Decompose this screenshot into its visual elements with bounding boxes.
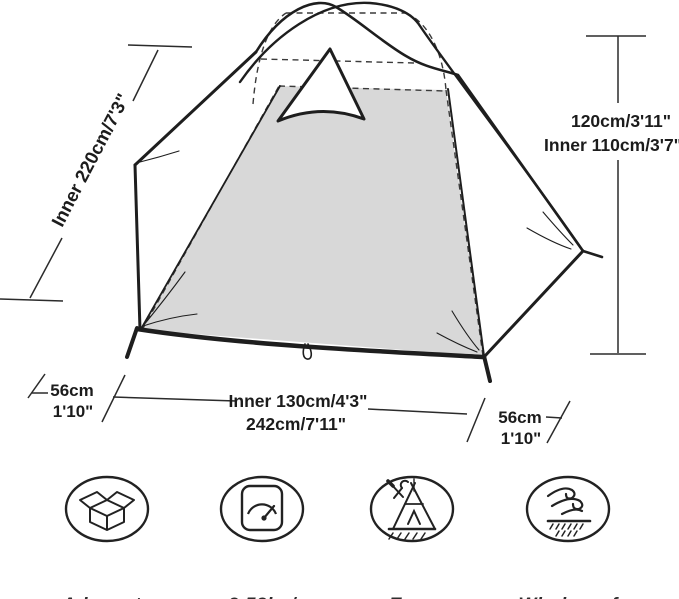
feature-label-line1: Easy	[383, 595, 442, 599]
feature-easy-setup: Easy set up	[336, 472, 488, 599]
tent-stake-left	[127, 328, 137, 357]
feature-label-line1: Adequate	[62, 595, 153, 599]
dim-label-left-vestibule-cm: 56cm	[50, 381, 93, 400]
tent-setup-icon	[362, 472, 462, 548]
dim-label-height: 120cm/3'11"	[571, 111, 671, 131]
open-box-icon	[57, 472, 157, 548]
feature-label-line1: Windproof	[518, 595, 617, 599]
product-diagram: Inner 220cm/7'3" 120cm/3'11" Inner 110cm…	[0, 0, 679, 599]
tent-illustration: Inner 220cm/7'3" 120cm/3'11" Inner 110cm…	[0, 0, 679, 462]
tent-stake-guy	[583, 251, 602, 257]
dim-label-inner-length: Inner 220cm/7'3"	[47, 90, 133, 230]
feature-weight: 2.58kg/ 5.68lbs	[186, 472, 338, 599]
feature-label-line1: 2.58kg/	[228, 595, 296, 599]
dim-label-inner-height: Inner 110cm/3'7"	[544, 135, 679, 155]
tent-floor	[142, 86, 483, 356]
tent-vent-triangle	[278, 49, 364, 121]
weight-scale-icon	[212, 472, 312, 548]
dim-label-right-vestibule-ft: 1'10"	[501, 429, 541, 448]
dim-label-right-vestibule-cm: 56cm	[498, 408, 541, 427]
wind-icon	[518, 472, 618, 548]
feature-windproof: Windproof	[492, 472, 644, 599]
feature-adequate-space: Adequate space	[31, 472, 183, 599]
feature-row: Adequate space 2.58kg/ 5.68lbs	[0, 468, 679, 599]
dim-label-total-width: 242cm/7'11"	[246, 414, 346, 434]
tent-stake-right	[484, 356, 490, 381]
dim-label-left-vestibule-ft: 1'10"	[53, 402, 93, 421]
dim-label-inner-width: Inner 130cm/4'3"	[229, 391, 368, 411]
